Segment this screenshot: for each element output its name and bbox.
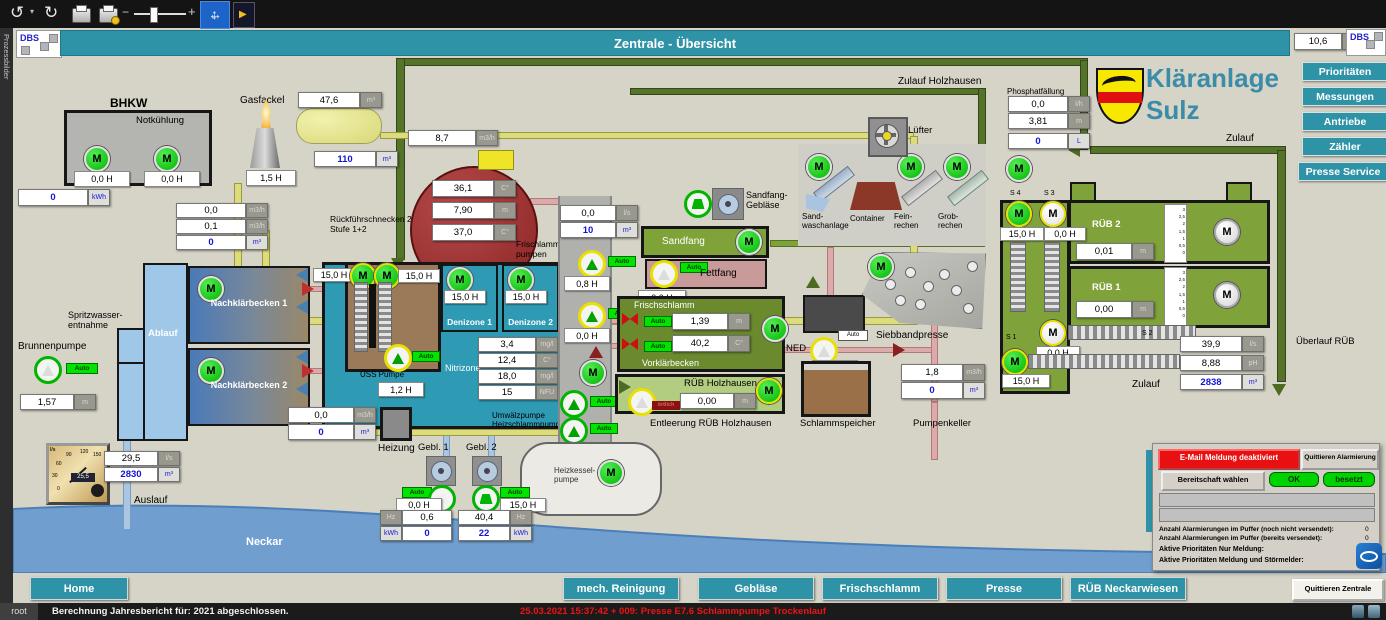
flow-arrow-icon xyxy=(296,350,308,364)
notkuehlung-label: Notkühlung xyxy=(136,116,184,127)
gauge-tick: 60 xyxy=(56,461,62,467)
rueckfuehr-flow2-field[interactable]: 0,1m3/h xyxy=(176,219,268,234)
s4-label: S 4 xyxy=(1010,190,1021,198)
s4-hours[interactable]: 15,0 H xyxy=(1000,227,1044,241)
phosphat-level-field[interactable]: 3,81m xyxy=(1008,113,1090,129)
ned-label: NED xyxy=(786,344,806,355)
zulauf-volume-field[interactable]: 2838m³ xyxy=(1180,374,1264,390)
ueberlauf-rueb-label: Überlauf RÜB xyxy=(1296,337,1355,348)
sandfang-motor[interactable]: M xyxy=(736,229,762,255)
gebl2-energy-field[interactable]: 22kWh xyxy=(458,526,532,541)
zulauf-right-pipe xyxy=(1090,146,1286,154)
redo-icon[interactable]: ↻ xyxy=(44,4,58,21)
frischschlamm-pump-2[interactable] xyxy=(578,302,606,330)
alarm-line2-label: Anzahl Alarmierungen im Puffer (bereits … xyxy=(1159,535,1322,542)
coat-red-band xyxy=(1098,92,1142,103)
s4-motor[interactable]: M xyxy=(1006,201,1032,227)
fettfang-pump[interactable] xyxy=(650,260,678,288)
gauge-tick: 30 xyxy=(52,473,58,479)
gauge-unit: l/s xyxy=(50,447,56,453)
alarm-line1-value: 0 xyxy=(1365,526,1369,533)
bhkw-energy-field[interactable]: 0kWh xyxy=(18,189,110,206)
uess-pump[interactable] xyxy=(384,344,412,372)
quittieren-alarmierung-button[interactable]: Quittieren Alarmierung xyxy=(1301,449,1379,470)
alarm-line2-value: 0 xyxy=(1365,535,1369,542)
brunnenpumpe-auto-badge[interactable]: Auto xyxy=(66,363,98,374)
gas-tank xyxy=(296,108,382,144)
plant-name-line1: Kläranlage xyxy=(1146,64,1279,94)
media-player-button[interactable]: ▶ xyxy=(233,2,255,28)
phosphat-motor[interactable]: M xyxy=(1006,156,1032,182)
alarm-line4-label: Aktive Prioritäten Meldung und Störmelde… xyxy=(1159,557,1304,564)
zoom-in-icon[interactable]: + xyxy=(188,5,196,18)
feinrechen-motor[interactable]: M xyxy=(898,154,924,180)
container-label: Container xyxy=(850,214,885,223)
auslauf-flow-field[interactable]: 29,5l/s xyxy=(104,451,180,466)
uess-auto-badge[interactable]: Auto xyxy=(412,351,440,362)
email-alarm-button[interactable]: E-Mail Meldung deaktiviert xyxy=(1158,449,1300,470)
status-alarm-message[interactable]: 25.03.2021 15:37:42 + 009: Presse E7.6 S… xyxy=(520,606,826,617)
sandfang-geblaese-pump[interactable] xyxy=(684,190,712,218)
flow-arrow-icon xyxy=(296,300,308,314)
nav-rueb-neckarwiesen-button[interactable]: RÜB Neckarwiesen xyxy=(1070,577,1186,600)
nav-presse-service-button[interactable]: Presse Service xyxy=(1298,162,1386,181)
s1-hours[interactable]: 15,0 H xyxy=(1002,374,1050,388)
valve-icon[interactable] xyxy=(622,313,638,325)
flow-arrow-icon xyxy=(302,282,314,296)
gebl1-frequency-field[interactable]: Hz0,6 xyxy=(380,510,452,525)
phosphat-volume-field[interactable]: 0L xyxy=(1008,133,1090,149)
dbs-logo: DBS xyxy=(16,30,62,58)
rueb1-label: RÜB 1 xyxy=(1092,283,1121,294)
zulauf-holzhausen-pipe xyxy=(978,88,986,146)
luefter-label: Lüfter xyxy=(908,126,932,137)
frischschlamm-level-field[interactable]: 1,39m xyxy=(672,313,750,330)
denizone2-hours[interactable]: 15,0 H xyxy=(505,290,547,304)
uess-pumpe-label: ÜSS Pumpe xyxy=(360,370,404,379)
sandfang-label: Sandfang xyxy=(662,236,705,248)
nav-messungen-button[interactable]: Messungen xyxy=(1302,87,1386,106)
rueb-holzhausen-label: RÜB Holzhausen xyxy=(684,379,757,390)
digester-level-field[interactable]: 7,90m xyxy=(432,202,516,219)
uess-motor2-hours[interactable]: 15,0 H xyxy=(398,269,440,283)
dbs-logo: DBS xyxy=(1346,29,1386,56)
zulauf-holzhausen-pipe xyxy=(630,88,982,95)
nitrizone-label: Nitrizone xyxy=(445,363,481,373)
frischschlammpumpen-volume-field[interactable]: 10m³ xyxy=(560,222,638,238)
side-tab-label: Prozessbilder xyxy=(2,34,11,79)
s3-hours[interactable]: 0,0 H xyxy=(1044,227,1086,241)
gauge-knob xyxy=(91,484,104,497)
gallery-motor[interactable]: M xyxy=(580,360,606,386)
ned-auto-box[interactable]: Auto xyxy=(838,330,868,341)
alarm-buffer-bar xyxy=(1159,493,1375,507)
app-toolbar: ↺ ▾ ↻ − + ↔ ↕ ▶ xyxy=(0,0,1386,28)
s2-motor[interactable]: M xyxy=(1040,320,1066,346)
screw-conveyor xyxy=(1044,242,1060,312)
umwaelz1-auto-badge[interactable]: Auto xyxy=(590,396,618,407)
frischschlamm-pump-1[interactable] xyxy=(578,250,606,278)
alarm-panel: E-Mail Meldung deaktiviert Quittieren Al… xyxy=(1152,443,1380,571)
print-preview-icon[interactable] xyxy=(99,8,118,23)
rueb1-motor[interactable]: M xyxy=(1214,282,1240,308)
heizung-flow-field[interactable]: 0,0m3/h xyxy=(288,407,376,423)
blower-icon xyxy=(472,456,502,486)
dbs-logo-square xyxy=(1366,40,1375,49)
gauge-readout: 25,5 xyxy=(71,473,95,482)
s1-label: S 1 xyxy=(1006,334,1017,342)
zulauf-top-label: Zulauf xyxy=(1226,133,1254,145)
gauge-tick: 0 xyxy=(57,486,60,492)
siebbandpresse-label: Siebbandpresse xyxy=(876,330,948,342)
container-icon xyxy=(850,182,902,210)
uess-divider xyxy=(369,284,376,348)
pump1-auto-badge[interactable]: Auto xyxy=(608,256,636,267)
frischschlammpumpen-flow-field[interactable]: 0,0l/s xyxy=(560,205,638,221)
bhkw-motor-1[interactable]: M xyxy=(84,146,110,172)
ablauf-channel xyxy=(143,263,188,441)
nkb2-label: Nachklärbecken 2 xyxy=(190,380,308,390)
zoom-out-icon[interactable]: − xyxy=(122,6,129,18)
bhkw-motor1-hours[interactable]: 0,0 H xyxy=(74,171,130,187)
fettfang-label: Fettfang xyxy=(700,268,737,280)
alarm-buffer-bar xyxy=(1159,508,1375,522)
ablauf-label: Ablauf xyxy=(148,329,178,340)
zoom-slider-handle[interactable] xyxy=(150,7,158,23)
umwaelz2-auto-badge[interactable]: Auto xyxy=(590,423,618,434)
rueckfuehrschnecken-label: Rückführschnecken 2 Stufe 1+2 xyxy=(330,215,412,235)
pan-arrows-icon: ↕ xyxy=(211,7,218,21)
screw-conveyor xyxy=(1028,354,1180,369)
nav-home-button[interactable]: Home xyxy=(30,577,128,600)
screw-conveyor xyxy=(1068,325,1196,340)
zulauf-flow-field[interactable]: 39,9l/s xyxy=(1180,336,1264,352)
oertlich-badge[interactable]: örtlich xyxy=(652,401,680,410)
status-tray-icon[interactable] xyxy=(1352,605,1364,618)
magnifier-icon xyxy=(111,16,120,25)
nkb1-label: Nachklärbecken 1 xyxy=(190,298,308,308)
gebl2-vent[interactable] xyxy=(472,485,500,513)
frischschlamm-label: Frischschlamm xyxy=(634,300,695,310)
besetzt-status-badge[interactable]: besetzt xyxy=(1323,472,1375,487)
nav-zaehler-button[interactable]: Zähler xyxy=(1302,137,1386,156)
process-images-side-tab[interactable]: Prozessbilder xyxy=(0,28,13,603)
frischschlamm-temp-field[interactable]: 40,2C° xyxy=(672,335,750,352)
heizung-label: Heizung xyxy=(378,443,415,455)
sandwaschanlage-label: Sand- waschanlage xyxy=(802,212,849,230)
denizone1-label: Denizone 1 xyxy=(443,318,496,328)
nitrizone-turbidity-field[interactable]: 15NFU xyxy=(478,385,558,400)
flow-gauge: l/s 150 120 90 60 30 0 25,5 xyxy=(46,443,110,505)
brunnenpumpe-level-field[interactable]: 1,57m xyxy=(20,394,96,410)
flow-arrow-icon xyxy=(296,268,308,282)
rueckfuehr-flow1-field[interactable]: 0,0m3/h xyxy=(176,203,268,218)
s1-motor[interactable]: M xyxy=(1002,349,1028,375)
umwaelz-pump-2[interactable] xyxy=(560,417,588,445)
ablauf-cell xyxy=(117,362,145,441)
gauge-tick: 150 xyxy=(93,452,101,458)
gasfackel-label: Gasfackel xyxy=(240,95,284,107)
ueberlauf-pipe xyxy=(1277,150,1286,382)
feinrechen-label: Fein- rechen xyxy=(894,212,918,230)
gas-level-field[interactable]: 110m³ xyxy=(314,151,398,167)
digester-temp1-field[interactable]: 36,1C° xyxy=(432,180,516,197)
pumpenkeller-label: Pumpenkeller xyxy=(913,419,971,430)
gasfackel-hours[interactable]: 1,5 H xyxy=(246,170,296,186)
dbs-logo-text: DBS xyxy=(20,33,39,43)
rueb2-level-scale: 3 2,5 2 1,5 1 0,5 0 xyxy=(1164,204,1187,263)
vorklaerbecken-label: Vorklärbecken xyxy=(642,358,699,368)
nav-presse-button[interactable]: Presse xyxy=(946,577,1062,600)
undo-icon[interactable]: ↺ xyxy=(10,4,24,21)
ok-status-badge[interactable]: OK xyxy=(1269,472,1319,487)
undo-dropdown-icon[interactable]: ▾ xyxy=(30,8,34,16)
nitrizone-tss-field[interactable]: 18,0mg/l xyxy=(478,369,558,384)
teamviewer-glyph xyxy=(1360,551,1378,562)
flow-arrow-icon xyxy=(296,382,308,396)
status-tray-icon[interactable] xyxy=(1368,605,1380,618)
blower-icon xyxy=(426,456,456,486)
pumpenkeller-volume-field[interactable]: 0m³ xyxy=(901,382,985,399)
screw-conveyor xyxy=(378,282,392,352)
flow-arrow-icon xyxy=(589,346,603,358)
luefter-box xyxy=(868,117,908,157)
grobrechen-label: Grob- rechen xyxy=(938,212,962,230)
uess-motor1-hours[interactable]: 15,0 H xyxy=(313,268,355,282)
play-icon: ▶ xyxy=(239,10,247,20)
blower-icon xyxy=(712,188,744,220)
dbs-logo-square xyxy=(1374,32,1383,41)
frischlammpumpen-label: Frischlamm- pumpen xyxy=(516,240,563,260)
nav-prioritaeten-button[interactable]: Prioritäten xyxy=(1302,62,1386,81)
rueb1-level-field[interactable]: 0,00m xyxy=(1076,301,1154,318)
gauge-tick: 120 xyxy=(80,449,88,455)
blower-hub-icon xyxy=(484,468,490,474)
gebl2-frequency-field[interactable]: 40,4Hz xyxy=(458,510,532,525)
denizone2-label: Denizone 2 xyxy=(504,318,557,328)
phosphatfaellung-label: Phosphatfällung xyxy=(1007,87,1064,96)
temperature-value: 10,6 xyxy=(1294,33,1342,50)
phosphat-flow-field[interactable]: 0,0l/h xyxy=(1008,96,1090,112)
rueb-holzhausen-level-field[interactable]: 0,00m xyxy=(680,393,756,409)
s3-label: S 3 xyxy=(1044,190,1055,198)
vorklaerbecken-motor[interactable]: M xyxy=(762,316,788,342)
sandfang-geblaese-label: Sandfang- Gebläse xyxy=(746,190,788,211)
flow-arrow-icon xyxy=(619,380,631,394)
denizone1-hours[interactable]: 15,0 H xyxy=(444,290,486,304)
screw-conveyor xyxy=(1010,242,1026,312)
heizkesselpumpe-label: Heizkessel- pumpe xyxy=(554,466,595,484)
bhkw-motor2-hours[interactable]: 0,0 H xyxy=(144,171,200,187)
nav-geblaese-button[interactable]: Gebläse xyxy=(698,577,814,600)
brunnenpumpe-pump[interactable] xyxy=(34,356,62,384)
title-bar: Zentrale - Übersicht xyxy=(60,30,1290,56)
nav-frischschlamm-button[interactable]: Frischschlamm xyxy=(822,577,938,600)
nav-antriebe-button[interactable]: Antriebe xyxy=(1302,112,1386,131)
dbs-logo-square xyxy=(21,46,30,55)
sludge-surface xyxy=(804,364,868,370)
dbs-logo-square xyxy=(40,42,49,51)
gauge-tick: 90 xyxy=(66,452,72,458)
rueb2-level-field[interactable]: 0,01m xyxy=(1076,243,1154,260)
fan-hub xyxy=(882,131,892,141)
zulauf-ph-field[interactable]: 8,88pH xyxy=(1180,355,1264,371)
blower-hub-icon xyxy=(725,201,731,207)
scada-screen: ↺ ▾ ↻ − + ↔ ↕ ▶ Prozessbilder DBS Zentra… xyxy=(0,0,1386,620)
digester-temp2-field[interactable]: 37,0C° xyxy=(432,224,516,241)
status-bar: root Berechnung Jahresbericht für: 2021 … xyxy=(0,603,1386,620)
schlammspeicher-label: Schlammspeicher xyxy=(800,419,876,430)
schlammspeicher-box xyxy=(801,361,871,417)
flow-arrow-icon xyxy=(302,364,314,378)
alarm-line1-label: Anzahl Alarmierungen im Puffer (noch nic… xyxy=(1159,526,1334,533)
heizung-volume-field[interactable]: 0m³ xyxy=(288,424,376,440)
pump2-hours[interactable]: 0,0 H xyxy=(564,328,610,343)
sandwasch-motor[interactable]: M xyxy=(806,154,832,180)
status-user: root xyxy=(0,603,38,620)
grobrechen-motor[interactable]: M xyxy=(944,154,970,180)
blower-hub-icon xyxy=(438,468,444,474)
valve1-auto-badge[interactable]: Auto xyxy=(644,316,672,327)
gebl2-auto-badge[interactable]: Auto xyxy=(500,487,530,498)
screw-conveyor xyxy=(354,282,368,352)
flow-arrow-icon xyxy=(1272,384,1286,396)
gas-volume-field[interactable]: 47,6m³ xyxy=(298,92,382,108)
auslauf-label: Auslauf xyxy=(134,495,167,507)
dbs-logo-square xyxy=(49,34,58,43)
bhkw-title: BHKW xyxy=(110,97,147,111)
digester-gas-dome xyxy=(478,150,514,170)
flow-arrow-icon xyxy=(893,343,905,357)
gas-flow-field[interactable]: 8,7m3/h xyxy=(408,130,498,146)
rueb-holzhausen-motor[interactable]: M xyxy=(756,378,782,404)
rueckfuehr-volume-field[interactable]: 0m³ xyxy=(176,235,268,250)
nitrizone-temp-field[interactable]: 12,4C° xyxy=(478,353,558,368)
neckar-label: Neckar xyxy=(246,536,283,549)
teamviewer-icon[interactable] xyxy=(1356,543,1382,569)
nav-mech-reinigung-button[interactable]: mech. Reinigung xyxy=(563,577,679,600)
zulauf-holzhausen-label: Zulauf Holzhausen xyxy=(898,76,981,88)
heizung-box xyxy=(380,407,412,441)
alarm-line3-label: Aktive Prioritäten Nur Meldung: xyxy=(1159,546,1264,553)
auslauf-volume-field[interactable]: 2830m³ xyxy=(104,467,180,482)
umwaelz-pump-1[interactable] xyxy=(560,390,588,418)
pan-tool-button[interactable]: ↔ ↕ xyxy=(200,1,230,29)
status-message: Berechnung Jahresbericht für: 2021 abges… xyxy=(52,606,289,617)
valve2-auto-badge[interactable]: Auto xyxy=(644,341,672,352)
entleerung-label: Entleerung RÜB Holzhausen xyxy=(650,419,771,430)
page-title: Zentrale - Übersicht xyxy=(61,36,1289,51)
rueb2-motor[interactable]: M xyxy=(1214,219,1240,245)
pumpenkeller-flow-field[interactable]: 1,8m3/h xyxy=(901,364,985,381)
gebl2-label: Gebl. 2 xyxy=(466,443,497,454)
uess-pumpe-hours[interactable]: 1,2 H xyxy=(378,382,424,397)
quittieren-zentrale-button[interactable]: Quittieren Zentrale xyxy=(1292,579,1384,601)
gebl1-energy-field[interactable]: kWh0 xyxy=(380,526,452,541)
ablauf-cell xyxy=(117,328,145,364)
zulauf-bottom-label: Zulauf xyxy=(1132,379,1160,391)
rueb2-label: RÜB 2 xyxy=(1092,220,1121,231)
nitrizone-o2-field[interactable]: 3,4mg/l xyxy=(478,337,558,352)
plant-name-line2: Sulz xyxy=(1146,96,1199,126)
heizkesselpumpe-motor[interactable]: M xyxy=(598,460,624,486)
pump1-hours[interactable]: 0,8 H xyxy=(564,276,610,291)
gebl1-label: Gebl. 1 xyxy=(418,443,449,454)
rueb1-level-scale: 3 2,5 2 1,5 1 0,5 0 xyxy=(1164,267,1187,326)
s3-motor[interactable]: M xyxy=(1040,201,1066,227)
bereitschaft-button[interactable]: Bereitschaft wählen xyxy=(1161,471,1265,491)
brunnenpumpe-label: Brunnenpumpe xyxy=(18,341,86,353)
siebbandpresse-motor[interactable]: M xyxy=(868,254,894,280)
print-icon[interactable] xyxy=(72,8,91,23)
umwaelzpumpe-label: Umwälzpumpe Heizschlammpumpe xyxy=(492,411,564,429)
valve-icon[interactable] xyxy=(622,338,638,350)
zoom-slider-track[interactable] xyxy=(134,13,186,15)
zulauf-pipe xyxy=(398,58,1088,66)
flow-arrow-icon xyxy=(806,276,820,288)
s2-label: S 2 xyxy=(1142,330,1153,338)
ned-tank xyxy=(803,295,865,333)
bhkw-motor-2[interactable]: M xyxy=(154,146,180,172)
spritzwasser-label: Spritzwasser- entnahme xyxy=(68,310,123,331)
sludge-pipe xyxy=(931,402,938,460)
